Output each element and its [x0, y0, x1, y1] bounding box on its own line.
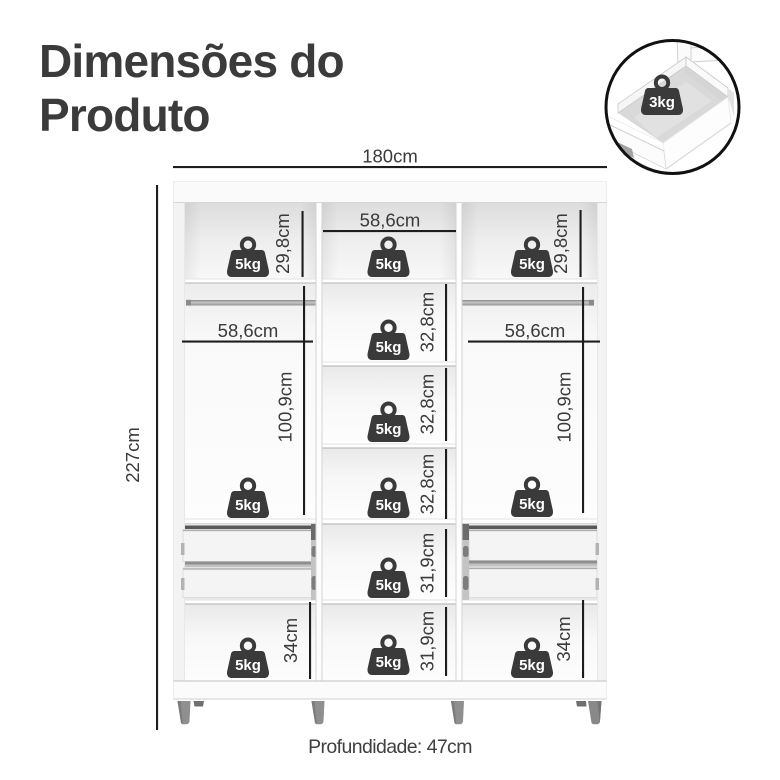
svg-text:32,8cm: 32,8cm — [417, 374, 438, 435]
svg-text:31,9cm: 31,9cm — [417, 611, 438, 672]
svg-text:3kg: 3kg — [649, 94, 675, 111]
svg-text:58,6cm: 58,6cm — [505, 320, 566, 341]
svg-text:34cm: 34cm — [553, 616, 574, 661]
svg-text:34cm: 34cm — [280, 618, 301, 663]
svg-text:32,8cm: 32,8cm — [417, 454, 438, 515]
svg-text:100,9cm: 100,9cm — [275, 372, 296, 443]
svg-text:29,8cm: 29,8cm — [272, 213, 293, 274]
svg-text:100,9cm: 100,9cm — [554, 372, 575, 443]
svg-text:Dimensões do: Dimensões do — [39, 35, 344, 87]
svg-text:Produto: Produto — [39, 89, 210, 141]
svg-text:227cm: 227cm — [122, 427, 143, 483]
svg-text:32,8cm: 32,8cm — [417, 292, 438, 353]
svg-text:180cm: 180cm — [362, 146, 418, 167]
svg-text:29,8cm: 29,8cm — [550, 213, 571, 274]
svg-text:31,9cm: 31,9cm — [417, 533, 438, 594]
svg-text:58,6cm: 58,6cm — [360, 210, 421, 231]
svg-text:58,6cm: 58,6cm — [218, 320, 279, 341]
svg-text:Profundidade: 47cm: Profundidade: 47cm — [308, 736, 472, 758]
